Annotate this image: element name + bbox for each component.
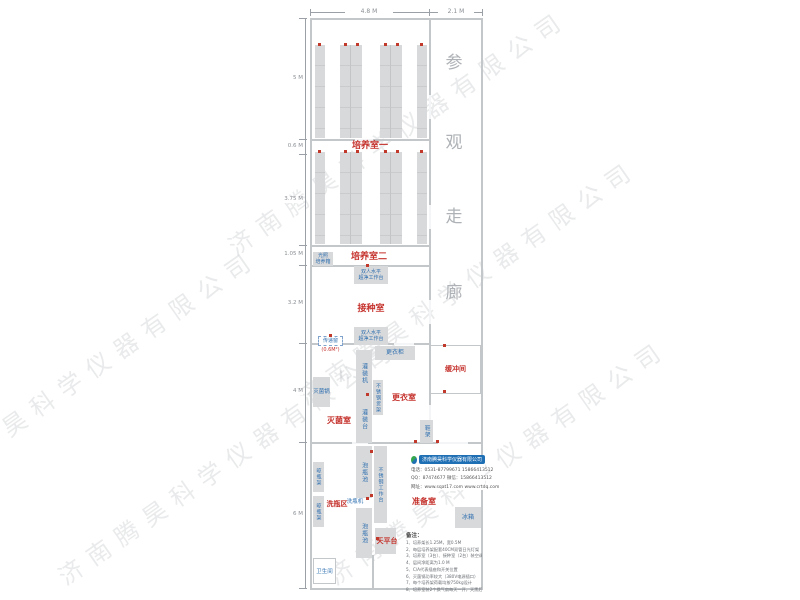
dimension-tick [299, 139, 307, 140]
door-marker [384, 43, 387, 46]
door-gap [438, 442, 468, 444]
door-marker [366, 393, 369, 396]
fridge-label: 冰箱 [462, 514, 474, 521]
soak-pool-label: 泡瓶池 [360, 523, 367, 544]
filling-machine-box: 灌装机 [356, 350, 372, 396]
door-marker [344, 150, 347, 153]
dimension-tick [299, 245, 307, 246]
note-line: 1、培养架长1.25M，宽0.5M [406, 540, 482, 547]
corridor-char: 参 [444, 48, 464, 73]
door-marker [420, 43, 423, 46]
light-incubator-box: 光照 培养箱 [313, 252, 333, 266]
door-marker [443, 344, 446, 347]
door-marker [376, 537, 379, 540]
dimension-tick [299, 588, 307, 589]
culture-rack [380, 152, 402, 244]
rack-divider [350, 45, 351, 138]
door-marker [366, 497, 369, 500]
door-marker [329, 334, 332, 337]
pass-window-box: 传递窗 [318, 336, 343, 346]
note-line: 4、层间净距离为1.0 M [406, 560, 482, 567]
rack-divider [390, 152, 391, 244]
door-marker [370, 494, 373, 497]
dimension-label: 3.75 M [281, 197, 303, 203]
door-marker [318, 150, 321, 153]
autoclave-label: 灭菌锅 [313, 389, 330, 396]
culture-rack [417, 45, 427, 138]
door-marker [420, 150, 423, 153]
culture-rack [315, 45, 325, 138]
dimension-label: 5 M [281, 76, 303, 82]
drying-rack-box-1: 晾瓶架 [313, 462, 324, 492]
soak-pool-box-2: 泡瓶池 [356, 508, 372, 558]
door-marker [436, 440, 439, 443]
clean-bench-box-2: 双人水平 超净工作台 [354, 327, 388, 345]
door-marker [414, 440, 417, 443]
company-qq: QQ：87474677 微信：15866413512 [411, 475, 485, 481]
soak-pool-box-1: 泡瓶池 [356, 446, 372, 498]
culture-rack [315, 152, 325, 244]
corridor-char: 观 [444, 128, 464, 153]
company-name: 济南腾昊科学仪器有限公司 [419, 455, 485, 464]
dimension-tick [482, 9, 483, 16]
dimension-line-left [305, 18, 306, 589]
light-incubator-label-2: 培养箱 [315, 259, 330, 265]
notes-block: 备注： 1、培养架长1.25M，宽0.5M 2、每层培养架配套40CM双管日光灯… [406, 531, 482, 594]
fridge-box: 冰箱 [455, 507, 481, 528]
dimension-label: 0.6 M [281, 144, 303, 150]
room-label-changing: 更衣室 [379, 392, 429, 403]
company-phone: 电话：0531-87799671 15866413512 [411, 467, 485, 473]
filling-machine-label: 灌装机 [360, 363, 367, 384]
soak-pool-label: 泡瓶池 [360, 462, 367, 483]
rack-divider [390, 45, 391, 138]
note-line: 8、培养室装2个换气扇每天一开，天黑后换气。 [406, 587, 482, 594]
shoe-rack-box: 鞋架 [420, 420, 433, 443]
room-label-culture2: 培养室二 [339, 249, 399, 262]
dimension-tick [429, 9, 430, 16]
door-marker [344, 43, 347, 46]
autoclave-box: 灭菌锅 [313, 377, 330, 407]
door-gap [429, 95, 431, 119]
pass-window-label: 传递窗 [323, 338, 338, 344]
wardrobe-label: 更衣柜 [386, 349, 404, 356]
clean-bench-label-2: 超净工作台 [358, 336, 383, 342]
culture-rack [380, 45, 402, 138]
door-marker [443, 390, 446, 393]
door-gap [429, 300, 431, 324]
room-label-sterilize: 灭菌室 [314, 415, 364, 426]
door-marker [384, 150, 387, 153]
dimension-label: 6 M [281, 512, 303, 518]
room-label-culture1: 培养室一 [340, 138, 400, 151]
dimension-tick [299, 154, 307, 155]
shoe-rack-label: 鞋架 [423, 425, 430, 438]
dimension-label-width-main: 4.8 M [345, 9, 393, 15]
dimension-label: 1.05 M [281, 252, 303, 258]
dimension-tick [299, 343, 307, 344]
drying-rack-label: 晾瓶架 [316, 468, 322, 486]
culture-rack [340, 45, 362, 138]
corridor-char: 廊 [444, 278, 464, 303]
company-web: 网址：www.sqat17.com www.crtdq.com [411, 484, 485, 490]
dimension-label: 3.2 M [281, 301, 303, 307]
dimension-tick [299, 442, 307, 443]
company-block: 济南腾昊科学仪器有限公司 电话：0531-87799671 1586641351… [411, 455, 485, 490]
door-marker [396, 43, 399, 46]
door-gap [429, 205, 431, 229]
wardrobe-box: 更衣柜 [375, 346, 415, 360]
culture-rack [417, 152, 427, 244]
door-marker [356, 150, 359, 153]
notes-title: 备注： [406, 531, 482, 539]
room-label-buffer: 缓冲间 [431, 364, 480, 374]
pass-window-size-label: (0.6M²) [316, 347, 345, 353]
dimension-tick [310, 9, 311, 16]
room-label-toilet: 卫生间 [313, 567, 336, 575]
dimension-tick [299, 265, 307, 266]
door-marker [396, 150, 399, 153]
steel-bench-box: 不锈钢工作台 [374, 446, 387, 523]
room-label-inoculation: 接种室 [346, 301, 396, 314]
door-marker [318, 43, 321, 46]
door-marker [356, 43, 359, 46]
clean-bench-box-1: 双人水平 超净工作台 [354, 266, 388, 284]
door-marker [366, 264, 369, 267]
company-logo-icon [411, 456, 417, 464]
clean-bench-label-2: 超净工作台 [358, 275, 383, 281]
floor-plan-canvas: 济南腾昊科学仪器有限公司 济南腾昊科学仪器有限公司 济南腾昊科学仪器有限公司 济… [0, 0, 800, 600]
rack-divider [350, 152, 351, 244]
dimension-label-width-corridor: 2.1 M [438, 9, 474, 15]
dimension-label: 4 M [281, 389, 303, 395]
culture-rack [340, 152, 362, 244]
door-marker [370, 450, 373, 453]
note-line: 5、C/A代表插座和开关位置 [406, 567, 482, 574]
wall-culture2-bottom [310, 245, 430, 247]
company-header: 济南腾昊科学仪器有限公司 [411, 455, 485, 464]
steel-bench-label: 不锈钢工作台 [378, 467, 384, 503]
room-label-prep: 准备室 [399, 496, 449, 507]
room-label-washing: 洗瓶区 [315, 499, 359, 509]
door-gap [394, 343, 414, 345]
wall-bottom-divider [372, 555, 374, 589]
dimension-tick [299, 18, 307, 19]
corridor-char: 走 [444, 202, 464, 227]
